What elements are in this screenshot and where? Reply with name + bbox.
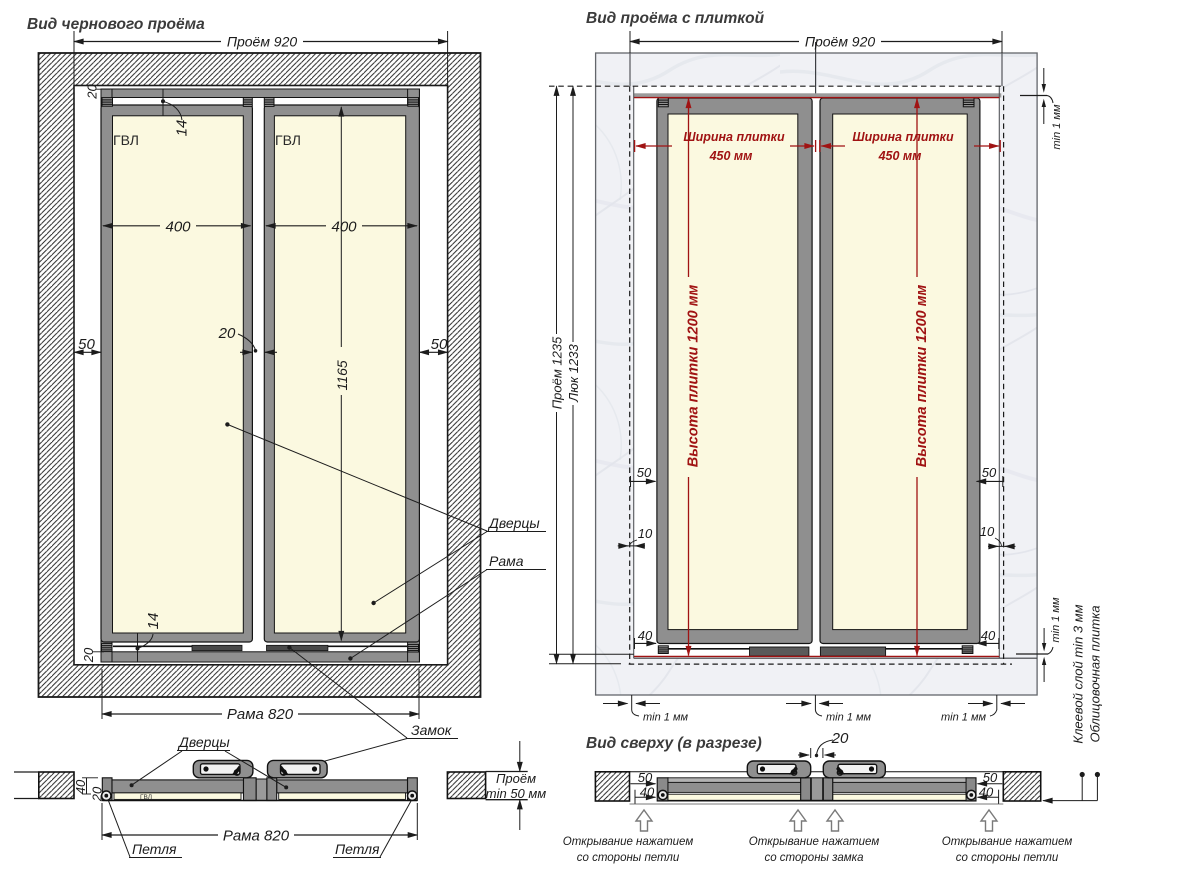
svg-text:20: 20 [218, 325, 236, 342]
svg-text:450 мм: 450 мм [709, 149, 753, 163]
svg-text:50: 50 [431, 336, 448, 353]
svg-text:Вид чернового проёма: Вид чернового проёма [27, 16, 205, 33]
svg-text:со стороны замка: со стороны замка [764, 852, 863, 864]
svg-text:Проём 1235: Проём 1235 [550, 336, 565, 409]
svg-text:Проём: Проём [496, 771, 536, 786]
svg-text:Рама 820: Рама 820 [223, 828, 290, 845]
svg-text:ГВЛ: ГВЛ [275, 132, 301, 148]
svg-text:10: 10 [980, 524, 995, 539]
svg-text:50: 50 [637, 465, 652, 480]
svg-text:Проём 920: Проём 920 [227, 34, 298, 50]
svg-text:min 1 мм: min 1 мм [941, 712, 986, 724]
svg-text:Дверцы: Дверцы [177, 734, 230, 750]
svg-text:Рама 820: Рама 820 [227, 706, 294, 723]
svg-text:Петля: Петля [132, 841, 177, 857]
svg-text:ГВЛ: ГВЛ [113, 132, 139, 148]
svg-text:со стороны петли: со стороны петли [577, 852, 680, 864]
svg-text:400: 400 [331, 219, 357, 236]
svg-text:min 50 мм: min 50 мм [486, 786, 547, 801]
svg-text:40: 40 [981, 628, 996, 643]
svg-text:Проём 920: Проём 920 [805, 34, 876, 50]
svg-text:50: 50 [638, 770, 653, 785]
svg-text:14: 14 [174, 120, 191, 137]
svg-text:14: 14 [145, 613, 162, 630]
svg-text:Высота плитки 1200 мм: Высота плитки 1200 мм [686, 285, 702, 468]
svg-text:40: 40 [638, 628, 653, 643]
svg-text:20: 20 [85, 84, 100, 100]
svg-text:Ширина плитки: Ширина плитки [683, 130, 785, 144]
svg-text:Вид проёма с плиткой: Вид проёма с плиткой [586, 10, 765, 27]
svg-text:Рама: Рама [489, 553, 524, 569]
svg-text:50: 50 [983, 770, 998, 785]
svg-text:Замок: Замок [411, 722, 453, 738]
svg-text:min 1 мм: min 1 мм [826, 712, 871, 724]
svg-text:40: 40 [73, 779, 88, 794]
svg-text:Открывание нажатием: Открывание нажатием [942, 836, 1073, 848]
svg-text:Облицовочная плитка: Облицовочная плитка [1088, 605, 1103, 742]
svg-text:min 1 мм: min 1 мм [1050, 597, 1062, 642]
svg-text:400: 400 [165, 219, 191, 236]
svg-text:Открывание нажатием: Открывание нажатием [563, 836, 694, 848]
svg-text:1165: 1165 [334, 360, 350, 390]
svg-text:450 мм: 450 мм [878, 149, 922, 163]
svg-text:10: 10 [638, 526, 653, 541]
svg-text:50: 50 [982, 465, 997, 480]
svg-text:Люк 1233: Люк 1233 [566, 344, 581, 403]
svg-text:Петля: Петля [335, 841, 380, 857]
svg-text:min 1 мм: min 1 мм [643, 712, 688, 724]
svg-text:20: 20 [90, 786, 105, 802]
svg-text:min 1 мм: min 1 мм [1051, 104, 1063, 149]
svg-text:Вид сверху (в разрезе): Вид сверху (в разрезе) [586, 735, 762, 752]
svg-text:Клеевой слой min 3 мм: Клеевой слой min 3 мм [1071, 604, 1086, 743]
svg-text:Дверцы: Дверцы [487, 515, 540, 531]
svg-text:50: 50 [78, 336, 95, 353]
svg-text:20: 20 [831, 730, 849, 747]
svg-text:Ширина плитки: Ширина плитки [852, 130, 954, 144]
svg-text:20: 20 [81, 647, 96, 663]
svg-text:Открывание нажатием: Открывание нажатием [749, 836, 880, 848]
svg-text:со стороны петли: со стороны петли [956, 852, 1059, 864]
svg-text:Высота плитки 1200 мм: Высота плитки 1200 мм [914, 285, 930, 468]
